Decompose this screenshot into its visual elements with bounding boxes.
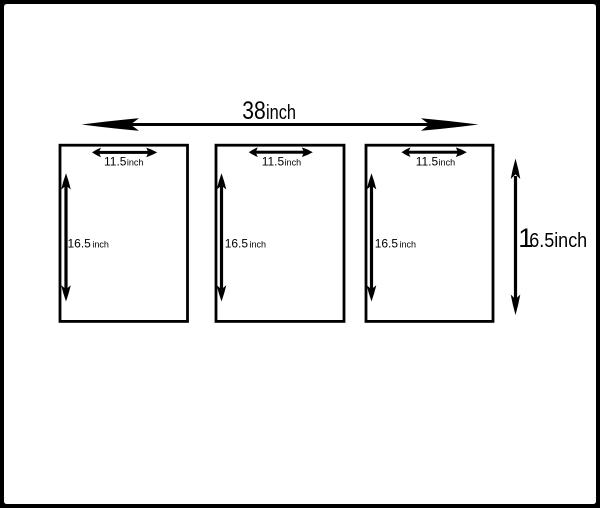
svg-text:16.5inch: 16.5inch <box>68 236 109 250</box>
svg-text:11.5inch: 11.5inch <box>416 155 455 169</box>
svg-text:inch: inch <box>266 102 296 124</box>
svg-text:11.5inch: 11.5inch <box>262 155 301 169</box>
svg-text:16.5inch: 16.5inch <box>375 236 416 250</box>
svg-text:11.5inch: 11.5inch <box>104 155 143 169</box>
svg-text:6.5inch: 6.5inch <box>529 229 587 252</box>
svg-text:16.5inch: 16.5inch <box>225 236 266 250</box>
svg-text:38: 38 <box>242 97 265 125</box>
